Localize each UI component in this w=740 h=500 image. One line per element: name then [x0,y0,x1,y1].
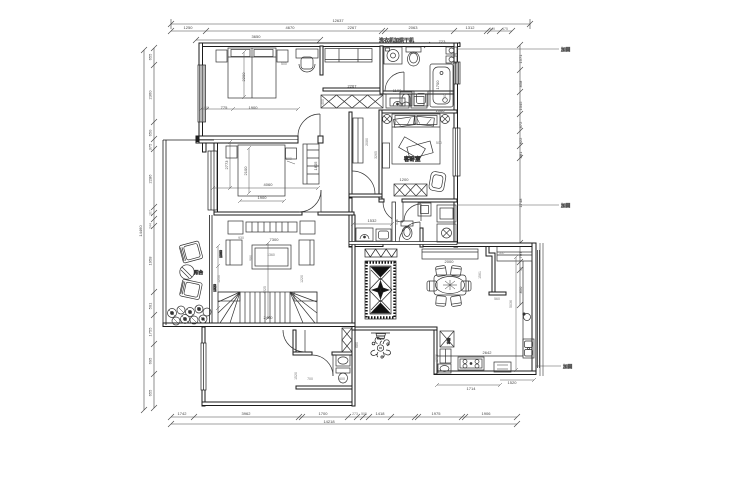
svg-text:775: 775 [221,105,228,110]
svg-text:加固: 加固 [561,46,571,53]
svg-text:695: 695 [148,357,153,364]
svg-text:1805: 1805 [313,161,318,171]
svg-text:1775: 1775 [435,354,439,362]
svg-text:加固: 加固 [561,202,571,209]
svg-text:2286: 2286 [148,174,153,184]
svg-text:505: 505 [361,412,367,416]
svg-text:475: 475 [502,27,508,31]
svg-text:1958: 1958 [148,256,153,266]
svg-text:200: 200 [203,106,209,110]
svg-text:680: 680 [355,342,359,348]
svg-text:阳台: 阳台 [194,269,204,276]
svg-text:1700: 1700 [319,411,329,416]
svg-text:1045: 1045 [518,101,523,111]
svg-text:1360: 1360 [267,253,275,257]
svg-text:3265: 3265 [374,151,378,159]
svg-text:1250: 1250 [184,25,194,30]
svg-text:2480: 2480 [264,315,274,320]
svg-text:2267: 2267 [348,25,358,30]
svg-text:1418: 1418 [376,411,386,416]
svg-text:1250: 1250 [217,275,221,283]
svg-text:2773: 2773 [224,160,229,170]
svg-text:14218: 14218 [323,419,335,424]
svg-text:850: 850 [518,286,523,293]
svg-text:1755: 1755 [148,327,153,337]
svg-text:881: 881 [518,151,523,158]
svg-text:872: 872 [518,121,523,128]
svg-text:1100: 1100 [393,88,402,93]
svg-text:3962: 3962 [242,411,252,416]
svg-text:1571: 1571 [518,54,523,64]
svg-text:5036: 5036 [509,300,513,308]
svg-text:2100: 2100 [243,166,248,176]
svg-text:客卧室: 客卧室 [404,155,421,163]
svg-text:2642: 2642 [483,350,493,355]
svg-text:560: 560 [494,297,500,301]
svg-text:537: 537 [499,251,505,255]
svg-text:500: 500 [286,157,292,161]
svg-text:930: 930 [395,219,399,225]
svg-text:14460: 14460 [138,225,143,237]
svg-text:1520: 1520 [508,380,518,385]
svg-text:600: 600 [339,377,345,381]
svg-text:2063: 2063 [409,25,419,30]
svg-text:1320: 1320 [213,284,217,292]
svg-text:冰箱: 冰箱 [446,338,451,344]
svg-text:1060: 1060 [219,250,223,258]
svg-text:12637: 12637 [332,18,344,23]
svg-text:4060: 4060 [264,182,274,187]
svg-text:2000: 2000 [445,259,455,264]
svg-text:1900: 1900 [249,105,259,110]
svg-text:4670: 4670 [286,25,296,30]
svg-text:加固: 加固 [563,363,573,370]
svg-text:1975: 1975 [432,411,442,416]
svg-text:500: 500 [436,141,442,145]
svg-text:750: 750 [443,94,447,100]
svg-text:650: 650 [148,129,153,136]
svg-text:449: 449 [489,27,495,31]
svg-text:1700: 1700 [435,80,440,90]
svg-text:1900: 1900 [258,195,268,200]
svg-text:501: 501 [148,302,153,309]
svg-text:930: 930 [238,236,244,240]
svg-text:1312: 1312 [466,25,476,30]
svg-text:4925: 4925 [263,286,267,294]
svg-text:400: 400 [321,99,325,105]
svg-text:1742: 1742 [178,411,188,416]
svg-text:1561: 1561 [478,271,482,279]
svg-text:48: 48 [519,267,523,271]
svg-text:2360: 2360 [148,90,153,100]
svg-text:655: 655 [148,389,153,396]
svg-text:2200: 2200 [241,72,246,82]
svg-text:2080: 2080 [365,138,369,146]
svg-text:1714: 1714 [467,386,477,391]
svg-text:7300: 7300 [270,237,280,242]
svg-text:858: 858 [518,80,523,87]
svg-text:375: 375 [148,143,153,150]
svg-text:980: 980 [249,255,253,261]
svg-text:洗衣机加烘干机: 洗衣机加烘干机 [379,37,414,44]
svg-text:700: 700 [307,377,313,381]
svg-text:500: 500 [281,62,287,66]
svg-text:2267: 2267 [348,84,358,89]
svg-text:1066: 1066 [436,108,446,113]
svg-text:1532: 1532 [368,218,378,223]
svg-text:3650: 3650 [252,34,262,39]
svg-text:273: 273 [352,412,358,416]
svg-text:655: 655 [148,53,153,60]
svg-text:822: 822 [518,137,523,144]
svg-text:1748: 1748 [518,198,523,208]
svg-text:1200: 1200 [400,177,410,182]
svg-text:167: 167 [149,210,153,216]
svg-text:1520: 1520 [294,372,298,380]
svg-text:1220: 1220 [300,275,304,283]
svg-text:244: 244 [149,223,153,229]
svg-text:1906: 1906 [482,411,492,416]
